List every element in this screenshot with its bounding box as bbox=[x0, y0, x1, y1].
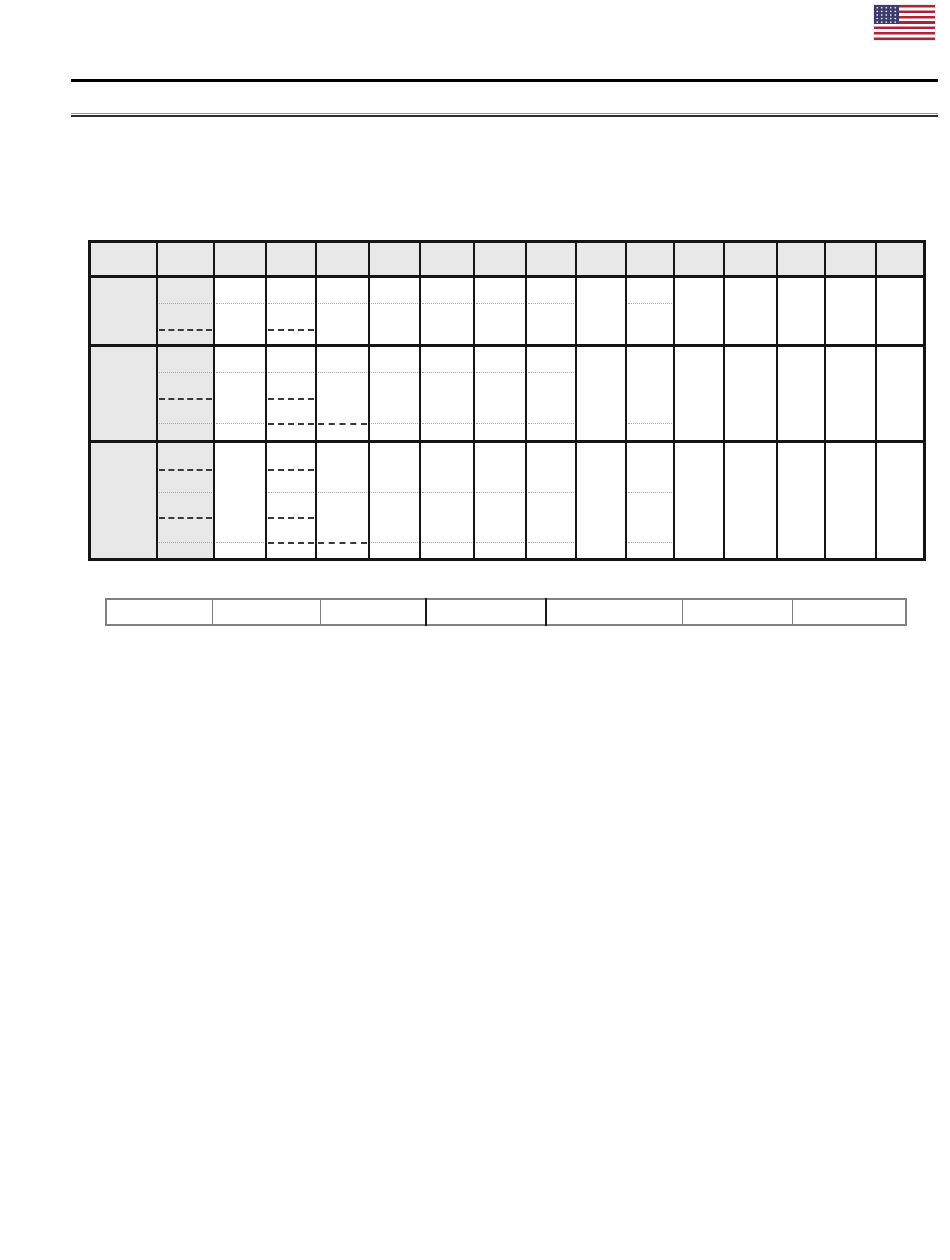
dotted-entry-line bbox=[159, 423, 212, 424]
dotted-entry-line bbox=[422, 303, 472, 304]
label-cell bbox=[90, 442, 157, 560]
data-cell bbox=[777, 442, 825, 560]
dashed-entry-line bbox=[159, 398, 212, 400]
dotted-entry-line bbox=[628, 542, 672, 543]
footer-cell bbox=[106, 599, 212, 625]
flag-canton bbox=[874, 5, 899, 24]
label-cell bbox=[157, 277, 214, 346]
dotted-entry-line bbox=[628, 492, 672, 493]
row-group-2 bbox=[90, 346, 925, 442]
data-cell bbox=[214, 442, 266, 560]
label-cell bbox=[157, 442, 214, 560]
data-cell bbox=[876, 277, 925, 346]
dotted-entry-line bbox=[371, 372, 418, 373]
dotted-entry-line bbox=[268, 492, 314, 493]
header-rule-secondary bbox=[71, 113, 938, 117]
main-form-table bbox=[88, 240, 926, 561]
dotted-entry-line bbox=[528, 372, 574, 373]
dotted-entry-line bbox=[628, 303, 672, 304]
header-cell bbox=[576, 242, 626, 277]
row-group-3 bbox=[90, 442, 925, 560]
dashed-entry-line bbox=[268, 398, 314, 400]
dotted-entry-line bbox=[318, 492, 367, 493]
dashed-entry-line bbox=[159, 329, 212, 331]
dotted-entry-line bbox=[476, 303, 524, 304]
dashed-entry-line bbox=[268, 329, 314, 331]
dashed-entry-line bbox=[268, 542, 314, 544]
header-cell bbox=[316, 242, 369, 277]
data-cell bbox=[474, 346, 526, 442]
data-cell bbox=[576, 442, 626, 560]
dotted-entry-line bbox=[159, 542, 212, 543]
data-cell bbox=[576, 346, 626, 442]
dotted-entry-line bbox=[476, 492, 524, 493]
dashed-entry-line bbox=[318, 542, 367, 544]
data-cell bbox=[576, 277, 626, 346]
label-cell bbox=[157, 346, 214, 442]
dashed-entry-line bbox=[318, 423, 367, 425]
row-group-1 bbox=[90, 277, 925, 346]
data-cell bbox=[369, 346, 420, 442]
footer-cell bbox=[792, 599, 906, 625]
data-cell bbox=[266, 277, 316, 346]
footer-strip-table bbox=[105, 598, 907, 626]
dashed-entry-line bbox=[268, 517, 314, 519]
footer-cell bbox=[546, 599, 682, 625]
header-cell bbox=[474, 242, 526, 277]
header-cell bbox=[420, 242, 474, 277]
data-cell bbox=[876, 442, 925, 560]
dotted-entry-line bbox=[371, 423, 418, 424]
dotted-entry-line bbox=[216, 372, 264, 373]
dotted-entry-line bbox=[318, 303, 367, 304]
dotted-entry-line bbox=[159, 372, 212, 373]
dashed-entry-line bbox=[159, 517, 212, 519]
header-cell bbox=[157, 242, 214, 277]
data-cell bbox=[316, 277, 369, 346]
data-cell bbox=[724, 277, 777, 346]
data-cell bbox=[674, 346, 724, 442]
data-cell bbox=[526, 442, 576, 560]
data-cell bbox=[266, 346, 316, 442]
dashed-entry-line bbox=[268, 423, 314, 425]
header-cell bbox=[825, 242, 876, 277]
dotted-entry-line bbox=[528, 303, 574, 304]
data-cell bbox=[825, 346, 876, 442]
data-cell bbox=[674, 442, 724, 560]
data-cell bbox=[369, 442, 420, 560]
dotted-entry-line bbox=[159, 303, 212, 304]
dotted-entry-line bbox=[268, 372, 314, 373]
header-cell bbox=[90, 242, 157, 277]
data-cell bbox=[626, 346, 674, 442]
data-cell bbox=[526, 277, 576, 346]
data-cell bbox=[316, 442, 369, 560]
dotted-entry-line bbox=[528, 492, 574, 493]
header-cell bbox=[526, 242, 576, 277]
data-cell bbox=[316, 346, 369, 442]
data-cell bbox=[724, 346, 777, 442]
data-cell bbox=[420, 346, 474, 442]
header-rule-primary bbox=[71, 79, 938, 82]
dotted-entry-line bbox=[371, 492, 418, 493]
header-cell bbox=[626, 242, 674, 277]
dotted-entry-line bbox=[476, 542, 524, 543]
data-cell bbox=[420, 442, 474, 560]
data-cell bbox=[876, 346, 925, 442]
dotted-entry-line bbox=[476, 423, 524, 424]
data-cell bbox=[526, 346, 576, 442]
label-cell bbox=[90, 277, 157, 346]
data-cell bbox=[420, 277, 474, 346]
data-cell bbox=[777, 277, 825, 346]
header-cell bbox=[369, 242, 420, 277]
dotted-entry-line bbox=[422, 492, 472, 493]
data-cell bbox=[214, 277, 266, 346]
data-cell bbox=[626, 442, 674, 560]
rule-line-bottom bbox=[71, 115, 938, 117]
dotted-entry-line bbox=[318, 372, 367, 373]
dotted-entry-line bbox=[216, 423, 264, 424]
footer-cell bbox=[426, 599, 546, 625]
dotted-entry-line bbox=[159, 492, 212, 493]
us-flag-icon bbox=[874, 5, 935, 40]
label-cell bbox=[90, 346, 157, 442]
data-cell bbox=[724, 442, 777, 560]
data-cell bbox=[474, 277, 526, 346]
data-cell bbox=[626, 277, 674, 346]
header-cell bbox=[876, 242, 925, 277]
footer-cell bbox=[212, 599, 320, 625]
header-cell bbox=[266, 242, 316, 277]
header-cell bbox=[214, 242, 266, 277]
dotted-entry-line bbox=[422, 372, 472, 373]
data-cell bbox=[825, 277, 876, 346]
dotted-entry-line bbox=[216, 303, 264, 304]
dotted-entry-line bbox=[628, 423, 672, 424]
dashed-entry-line bbox=[268, 469, 314, 471]
data-cell bbox=[214, 346, 266, 442]
data-cell bbox=[266, 442, 316, 560]
footer-cell bbox=[320, 599, 426, 625]
dashed-entry-line bbox=[159, 469, 212, 471]
document-page bbox=[0, 0, 950, 1260]
dotted-entry-line bbox=[268, 303, 314, 304]
data-cell bbox=[674, 277, 724, 346]
dotted-entry-line bbox=[371, 303, 418, 304]
data-cell bbox=[825, 442, 876, 560]
table-header-row bbox=[90, 242, 925, 277]
data-cell bbox=[474, 442, 526, 560]
header-cell bbox=[674, 242, 724, 277]
dotted-entry-line bbox=[371, 542, 418, 543]
data-cell bbox=[369, 277, 420, 346]
footer-row bbox=[106, 599, 906, 625]
dotted-entry-line bbox=[422, 423, 472, 424]
dotted-entry-line bbox=[528, 542, 574, 543]
dotted-entry-line bbox=[422, 542, 472, 543]
footer-cell bbox=[682, 599, 792, 625]
data-cell bbox=[777, 346, 825, 442]
dotted-entry-line bbox=[528, 423, 574, 424]
header-cell bbox=[777, 242, 825, 277]
dotted-entry-line bbox=[216, 542, 264, 543]
header-cell bbox=[724, 242, 777, 277]
dotted-entry-line bbox=[476, 372, 524, 373]
